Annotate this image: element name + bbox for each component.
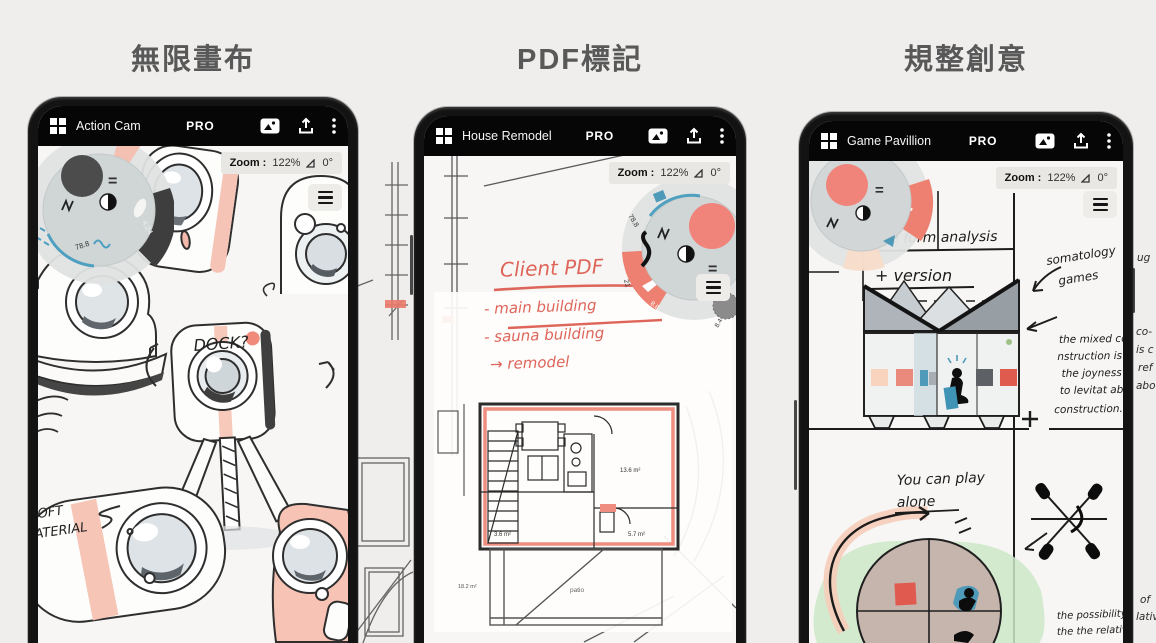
- insert-image-icon[interactable]: [648, 128, 668, 144]
- app-grid-icon[interactable]: [821, 133, 837, 149]
- wheel-size-label: 8.4: [714, 317, 725, 329]
- room-area-label: 5.7 m²: [628, 532, 645, 538]
- panel-title-organize-ideas: 規整創意: [799, 36, 1133, 78]
- drawing-canvas-1[interactable]: Zoom : 122% 0° = 78.8: [38, 146, 348, 643]
- zoom-value: 122%: [272, 157, 300, 169]
- tool-wheel[interactable]: = 78.8 21 8.8 8.4: [602, 182, 736, 342]
- note-play-2: alone: [897, 494, 936, 511]
- app-grid-icon[interactable]: [50, 118, 66, 134]
- rotation-angle-icon: [694, 169, 704, 178]
- panel-title-infinite-canvas: 無限畫布: [28, 36, 358, 78]
- share-export-icon[interactable]: [297, 117, 315, 135]
- app-screen-3: Game Pavillion PRO Zoom : 122% 0°: [809, 121, 1123, 643]
- svg-text:=: =: [108, 173, 117, 190]
- note-item: → remodel: [490, 353, 570, 374]
- overflow-menu-icon[interactable]: [1107, 133, 1111, 149]
- note-heading: Client PDF: [500, 254, 604, 282]
- zoom-label: Zoom :: [618, 167, 655, 179]
- room-area-label: 13.6 m²: [620, 468, 640, 474]
- note-bottom-line: the the relativ: [1057, 624, 1123, 638]
- insert-image-icon[interactable]: [1035, 133, 1055, 149]
- note-paragraph-line: to levitat abo: [1060, 384, 1123, 397]
- note-games-2: games: [1057, 268, 1099, 288]
- document-title[interactable]: Action Cam: [76, 119, 141, 133]
- note-bottom-line: the possibility of: [1057, 608, 1123, 622]
- rotation-angle-icon: [1081, 174, 1091, 183]
- pro-badge: PRO: [586, 129, 614, 143]
- app-screen-2: House Remodel PRO Zoom : 122% 0°: [424, 116, 736, 643]
- note-paragraph-line: the joyness ref: [1061, 367, 1123, 380]
- pro-badge: PRO: [969, 134, 997, 148]
- wheel-size-label: 21: [622, 279, 631, 288]
- zoom-indicator[interactable]: Zoom : 122% 0°: [609, 162, 730, 184]
- room-area-label: 3.6 m²: [494, 532, 511, 538]
- zoom-indicator[interactable]: Zoom : 122% 0°: [221, 152, 342, 174]
- note-paragraph-line: the mixed co-: [1059, 333, 1123, 346]
- room-area-label: 18.2 m²: [458, 584, 477, 590]
- insert-image-icon[interactable]: [260, 118, 280, 134]
- panel-title-pdf-markup: PDF標記: [414, 36, 746, 78]
- app-screen-1: Action Cam PRO Zoom : 122% 0°: [38, 106, 348, 643]
- patio-label: patio: [570, 587, 584, 594]
- appbar-3: Game Pavillion PRO: [809, 121, 1123, 161]
- layers-hamburger-icon[interactable]: [308, 184, 342, 211]
- overflow-menu-icon[interactable]: [720, 128, 724, 144]
- phone-frame-3: Game Pavillion PRO Zoom : 122% 0°: [799, 112, 1133, 643]
- rotation-angle-icon: [306, 159, 316, 168]
- pro-badge: PRO: [186, 119, 214, 133]
- zoom-indicator[interactable]: Zoom : 122% 0°: [996, 167, 1117, 189]
- drawing-canvas-2[interactable]: Zoom : 122% 0° = 78.8: [424, 156, 736, 643]
- layers-hamburger-icon[interactable]: [696, 274, 730, 301]
- appbar-2: House Remodel PRO: [424, 116, 736, 156]
- tool-wheel[interactable]: = 78.8 4.24: [38, 146, 174, 288]
- svg-text:=: =: [875, 182, 884, 199]
- tool-wheel[interactable]: =: [809, 161, 943, 289]
- layers-hamburger-icon[interactable]: [1083, 191, 1117, 218]
- phone-frame-1: Action Cam PRO Zoom : 122% 0°: [28, 97, 358, 643]
- drawing-canvas-3[interactable]: Zoom : 122% 0° =: [809, 161, 1123, 643]
- rotation-value: 0°: [322, 157, 333, 169]
- note-paragraph-line: construction.: [1054, 403, 1123, 416]
- note-paragraph-line: nstruction is c: [1057, 350, 1123, 363]
- share-export-icon[interactable]: [1072, 132, 1090, 150]
- zoom-value: 122%: [1047, 172, 1075, 184]
- phone-frame-2: House Remodel PRO Zoom : 122% 0°: [414, 107, 746, 643]
- appbar-1: Action Cam PRO: [38, 106, 348, 146]
- note-play-1: You can play: [897, 470, 986, 489]
- note-games-1: somatology: [1045, 243, 1117, 268]
- rotation-value: 0°: [1097, 172, 1108, 184]
- rotation-value: 0°: [710, 167, 721, 179]
- zoom-label: Zoom :: [1005, 172, 1042, 184]
- annotation-dock: DOCK?: [193, 332, 250, 355]
- overflow-menu-icon[interactable]: [332, 118, 336, 134]
- share-export-icon[interactable]: [685, 127, 703, 145]
- zoom-label: Zoom :: [230, 157, 267, 169]
- document-title[interactable]: House Remodel: [462, 129, 552, 143]
- zoom-value: 122%: [660, 167, 688, 179]
- document-title[interactable]: Game Pavillion: [847, 134, 931, 148]
- app-grid-icon[interactable]: [436, 128, 452, 144]
